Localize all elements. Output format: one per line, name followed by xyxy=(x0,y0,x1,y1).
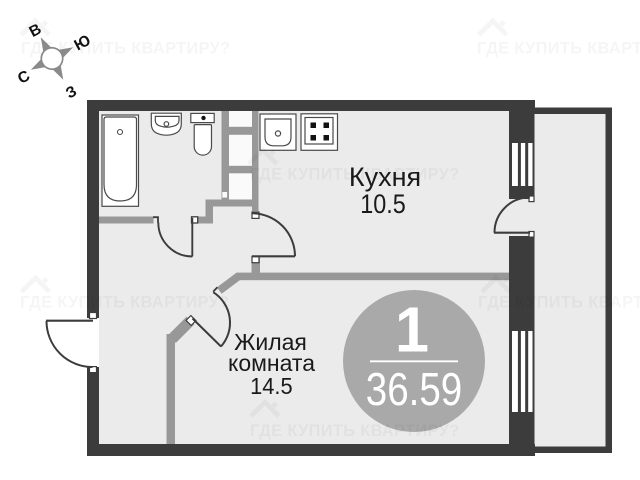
svg-text:1: 1 xyxy=(395,294,429,366)
svg-text:ГДЕ КУПИТЬ КВАРТИРУ?: ГДЕ КУПИТЬ КВАРТИРУ? xyxy=(250,166,460,184)
svg-text:ГДЕ КУПИТЬ КВАРТИРУ?: ГДЕ КУПИТЬ КВАРТИРУ? xyxy=(478,294,640,312)
svg-text:14.5: 14.5 xyxy=(250,373,293,399)
svg-text:10.5: 10.5 xyxy=(360,189,406,219)
svg-text:ГДЕ КУПИТЬ КВАРТИРУ?: ГДЕ КУПИТЬ КВАРТИРУ? xyxy=(250,422,460,440)
svg-text:ГДЕ КУПИТЬ КВАРТИРУ?: ГДЕ КУПИТЬ КВАРТИРУ? xyxy=(477,40,640,58)
svg-text:ГДЕ КУПИТЬ КВАРТИРУ?: ГДЕ КУПИТЬ КВАРТИРУ? xyxy=(20,294,230,312)
svg-text:36.59: 36.59 xyxy=(366,363,463,415)
